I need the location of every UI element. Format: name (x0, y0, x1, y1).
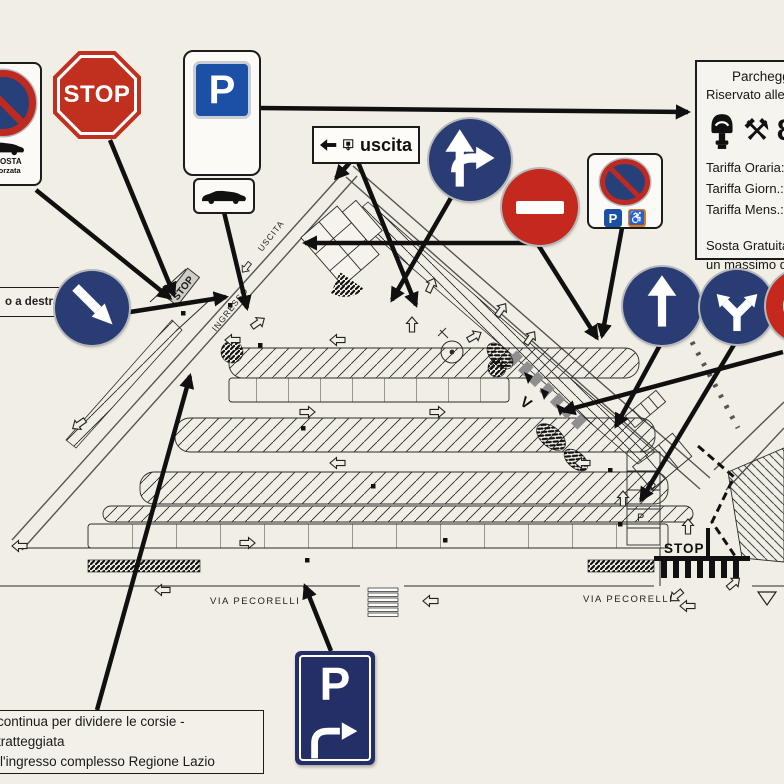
scanned-parking-plan: VIA PECORELLI VIA PECORELLI USCITA INGRE… (0, 0, 784, 784)
annotation-arrow (130, 297, 226, 312)
mini-p-icon: P (604, 209, 622, 227)
car-icon (200, 188, 248, 205)
annotation-arrow (602, 228, 622, 336)
no-parking-icon (600, 159, 650, 205)
annotation-arrow (258, 108, 688, 112)
no-entry-bar (516, 201, 564, 214)
car-sub-panel (193, 178, 255, 214)
legend-note-line: continua per dividere le corsie - tratte… (0, 712, 253, 753)
no-parking-icon (0, 70, 36, 136)
straight-or-right-sign (429, 119, 511, 201)
annotation-arrow (358, 162, 416, 305)
tariff-note: Sosta Gratuita (706, 237, 784, 256)
keep-right-sign (55, 271, 129, 345)
stop-sign: STOP (53, 51, 141, 139)
straight-only-sign (623, 267, 701, 345)
car-icon (0, 140, 26, 156)
straight-or-right-arrows-icon (429, 119, 511, 201)
parking-p-label: P (209, 68, 236, 113)
sign-caption: ne forzata (0, 167, 21, 175)
parking-turn-sign: P (295, 651, 375, 765)
left-or-right-sign (700, 270, 774, 344)
wheelchair-icon: ♿ (628, 209, 646, 227)
tariff-row: Tariffa Mens.: (706, 200, 784, 221)
disabled-parking-panel: P ♿ (587, 153, 663, 229)
tariff-subtitle: Riservato alle (706, 87, 784, 102)
tariff-row: Tariffa Giorn.: (706, 179, 784, 200)
curved-right-arrow-icon (301, 713, 369, 759)
no-parking-tow-sign: DI SOSTA ne forzata (0, 62, 42, 186)
annotation-arrow (537, 243, 597, 338)
annotation-arrow (392, 196, 452, 300)
a-destra-label: o a destra (5, 296, 59, 308)
up-arrow-icon (623, 267, 701, 345)
uscita-exit-sign: uscita (312, 126, 420, 164)
parking-turn-p: P (295, 657, 375, 711)
legend-note-line: ll'ingresso complesso Regione Lazio (0, 752, 215, 772)
tariff-row: Tariffa Oraria: (706, 158, 784, 179)
tariff-info-panel: Parcheggio Riservato alle ⚒ 8 Tariffa Or… (695, 60, 784, 260)
left-arrow-icon (320, 136, 337, 154)
tariff-title: Parcheggio (706, 69, 784, 84)
parking-meter-icon (708, 112, 736, 150)
annotation-arrow (305, 586, 331, 651)
parking-sign-panel: P (183, 50, 261, 176)
annotation-arrow (97, 376, 190, 710)
uscita-label: uscita (360, 135, 412, 156)
legend-note-box: continua per dividere le corsie - tratte… (0, 710, 264, 774)
stop-label: STOP (64, 81, 131, 109)
no-entry-sign (502, 169, 578, 245)
annotation-arrow (563, 352, 783, 411)
fork-arrows-icon (700, 270, 774, 344)
stop-face: STOP (60, 58, 134, 132)
hammers-icon: ⚒ (743, 116, 770, 146)
exit-pictogram-icon (343, 136, 354, 154)
partial-glyph: 8 (777, 114, 784, 148)
parking-p-square: P (193, 61, 251, 119)
down-right-arrow-icon (55, 271, 129, 345)
annotation-arrow (224, 212, 247, 308)
